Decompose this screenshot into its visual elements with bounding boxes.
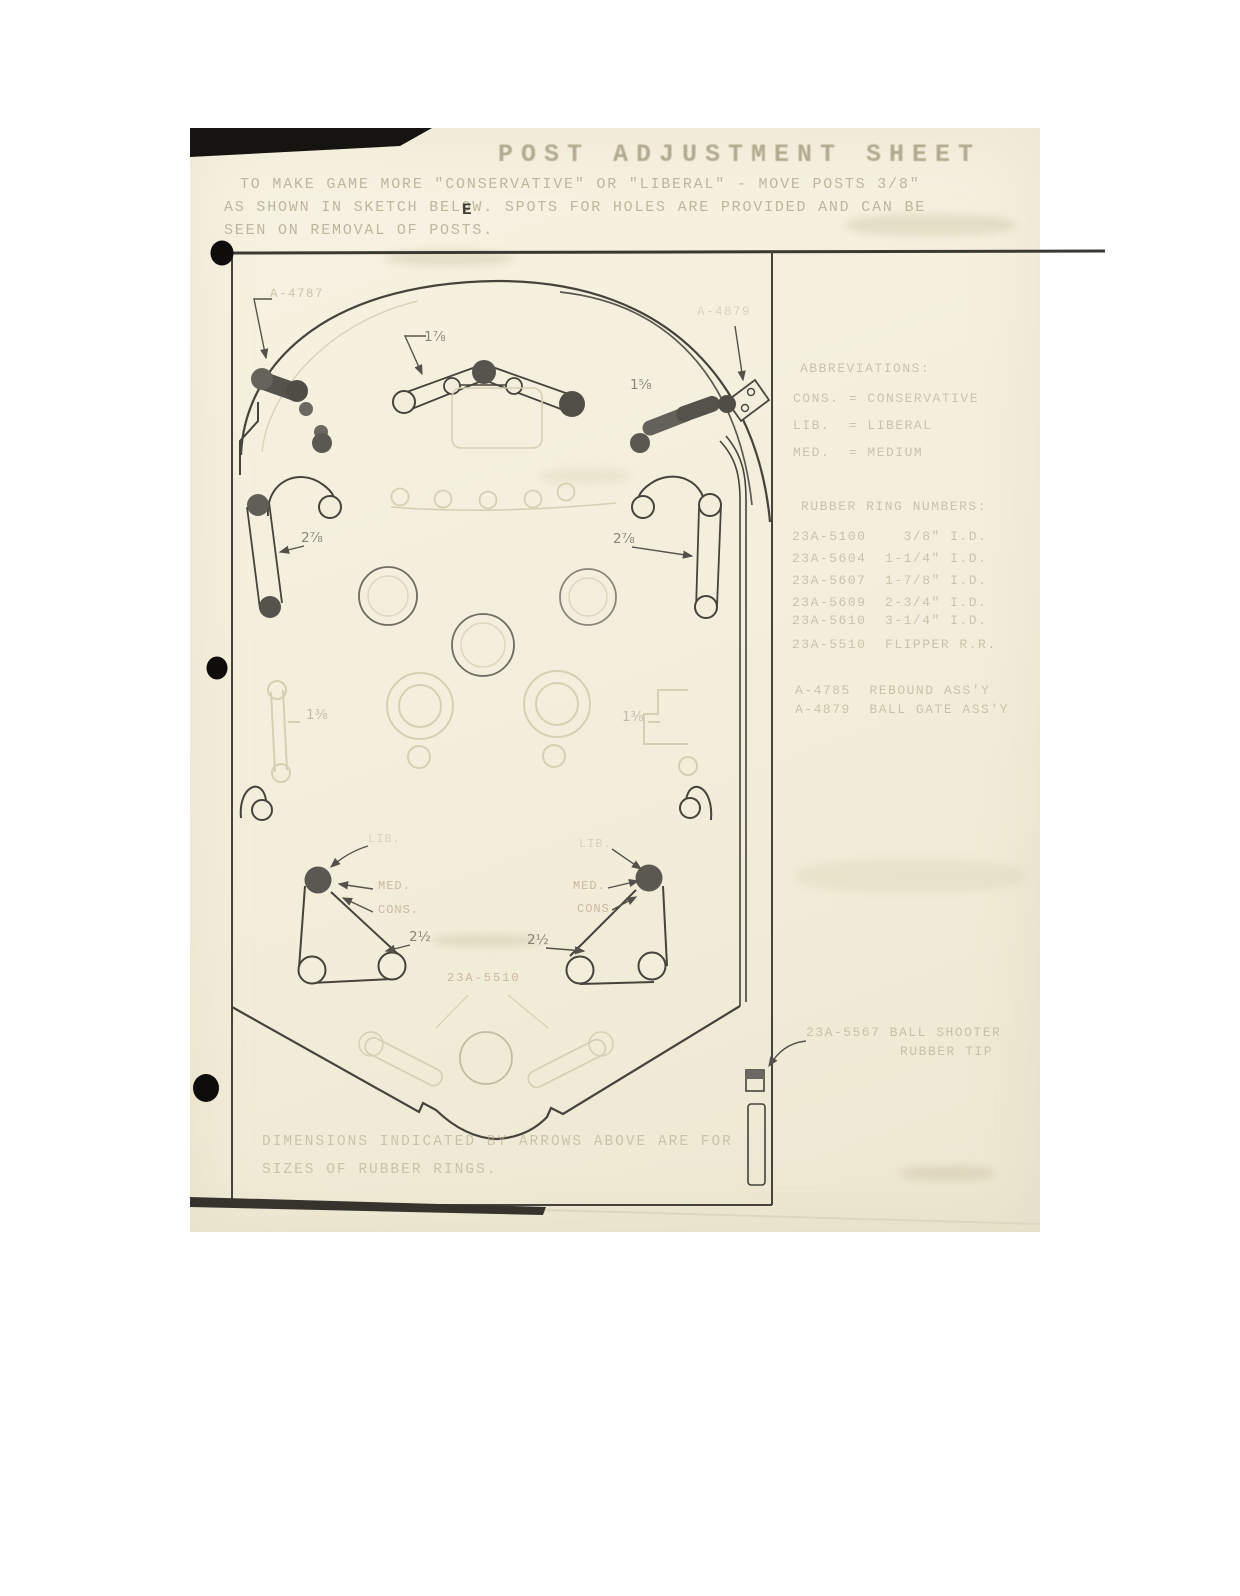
rubber-ring-item: 23A-5100 3/8" I.D. [792, 530, 987, 545]
lower-hooks [241, 787, 712, 820]
intro-line-2: AS SHOWN IN SKETCH BELOW. SPOTS FOR HOLE… [224, 199, 926, 216]
top-lane-dimension: 1⅞ [424, 330, 446, 346]
page-title: POST ADJUSTMENT SHEET [498, 141, 898, 170]
right-sling-dimension: 2½ [527, 933, 549, 949]
top-right-gate-label: A-4879 [697, 305, 751, 319]
punch-hole [207, 657, 228, 680]
right-mid-dimension: 1⅜ [622, 710, 644, 726]
ball-shooter [746, 1041, 806, 1185]
left-sling-med-label: MED. [378, 880, 411, 894]
ballgate-assembly-label: A-4879 BALL GATE ASS'Y [795, 703, 1009, 718]
right-sling-med-label: MED. [573, 880, 606, 894]
top-left-post-assembly [251, 299, 328, 439]
right-sling-cons-label: CONS. [577, 903, 618, 917]
left-sling-cons-label: CONS. [378, 904, 419, 918]
rubber-ring-item: 23A-5607 1-7/8" I.D. [792, 574, 987, 589]
playfield-arch [240, 281, 770, 522]
rebound-assembly-label: A-4785 REBOUND ASS'Y [795, 684, 990, 699]
gate-dimension: 1⅝ [630, 378, 652, 394]
top-chevron-lane [393, 336, 585, 417]
bottom-drain [232, 1006, 740, 1139]
ghost-flippers [359, 995, 613, 1090]
middle-circles [359, 567, 616, 676]
right-band-dimension: 2⅞ [613, 532, 635, 548]
left-band-dimension: 2⅞ [301, 531, 323, 547]
margin-mark: E [462, 201, 473, 219]
scanner-shadow-wedge [190, 128, 432, 157]
right-sling-lib-label: LIB. [579, 838, 612, 852]
intro-line-3: SEEN ON REMOVAL OF POSTS. [224, 222, 494, 239]
scanner-shadow-bottom [190, 1197, 546, 1215]
intro-line-1: TO MAKE GAME MORE "CONSERVATIVE" OR "LIB… [240, 176, 921, 193]
shooter-label-line-2: RUBBER TIP [900, 1045, 993, 1060]
left-sling-lib-label: LIB. [368, 833, 401, 847]
shooter-label-line-1: 23A-5567 BALL SHOOTER [806, 1026, 1001, 1041]
flipper-ring-item: 23A-5510 FLIPPER R.R. [792, 638, 997, 653]
flipper-ring-callout: 23A-5510 [447, 972, 521, 986]
rubber-ring-item: 23A-5610 3-1/4" I.D. [792, 614, 987, 629]
top-left-post-label: A-4787 [270, 287, 324, 301]
scanned-page-canvas: POST ADJUSTMENT SHEET TO MAKE GAME MORE … [0, 0, 1240, 1596]
playfield-diagram [0, 0, 1240, 1596]
left-sling-dimension: 2½ [409, 930, 431, 946]
rubber-rings-heading: RUBBER RING NUMBERS: [801, 500, 987, 515]
punch-hole [193, 1074, 219, 1102]
rubber-ring-item: 23A-5604 1-1/4" I.D. [792, 552, 987, 567]
left-mid-dimension: 1⅜ [306, 708, 328, 724]
abbreviation-item: LIB. = LIBERAL [793, 419, 933, 434]
left-lane-guide [247, 433, 341, 618]
abbreviation-item: MED. = MEDIUM [793, 446, 923, 461]
abbreviations-heading: ABBREVIATIONS: [800, 362, 930, 377]
abbreviation-item: CONS. = CONSERVATIVE [793, 392, 979, 407]
footer-note-line-1: DIMENSIONS INDICATED BY ARROWS ABOVE ARE… [262, 1134, 733, 1151]
rubber-ring-item: 23A-5609 2-3/4" I.D. [792, 596, 987, 611]
punch-hole [211, 241, 234, 266]
ghost-kickouts [268, 671, 697, 782]
footer-note-line-2: SIZES OF RUBBER RINGS. [262, 1162, 497, 1179]
